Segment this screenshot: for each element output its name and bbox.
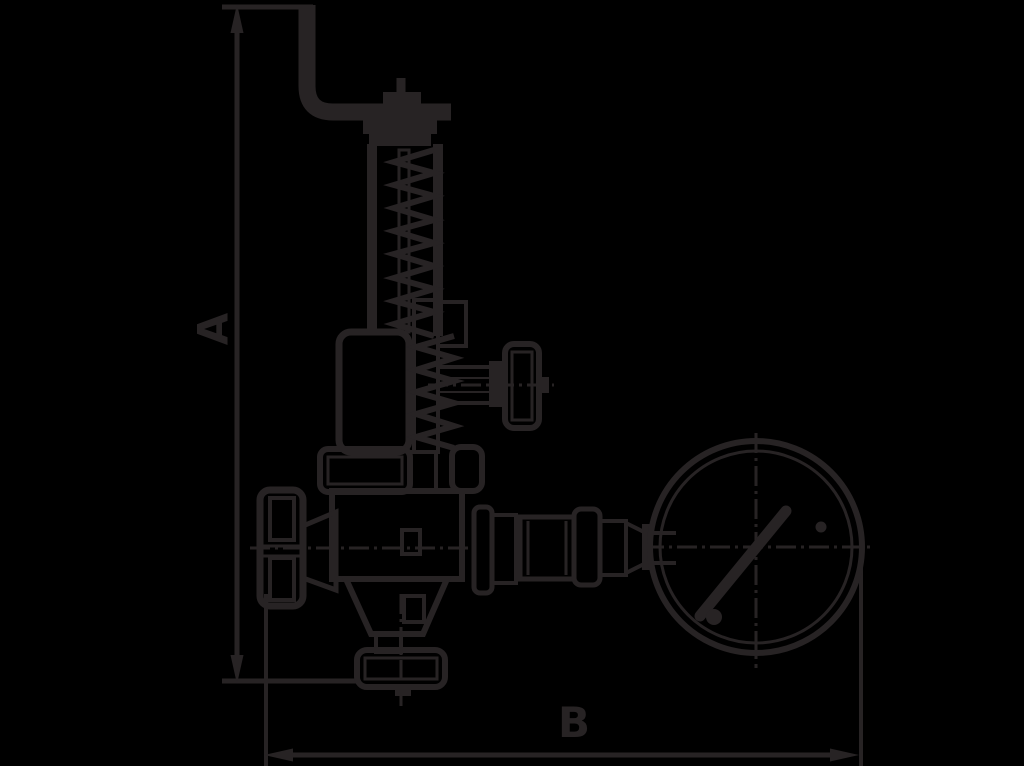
valve-body [250, 490, 480, 706]
lever-bar [307, 5, 451, 112]
spring-casing [339, 332, 409, 452]
cap-stem [397, 78, 406, 94]
gauge-needle [700, 511, 786, 616]
handwheel-inner-bottom [270, 558, 294, 600]
pressure-gauge [644, 433, 871, 668]
handwheel-inner-top [270, 498, 294, 540]
dimension-b-label: B [558, 698, 590, 747]
technical-drawing-canvas: A B [0, 0, 1024, 766]
dimension-a-label: A [189, 312, 238, 345]
spring-bonnet [339, 144, 466, 452]
outlet-stub [395, 687, 411, 696]
bonnet-top-nut [369, 134, 431, 146]
mid-flange-left-inner [328, 457, 402, 484]
tee-flange [474, 507, 492, 593]
union-flange [574, 509, 600, 585]
gauge-dial-dot [816, 522, 827, 533]
arrow-right-icon [830, 749, 859, 762]
needle-counterweight [706, 609, 722, 625]
body-block [332, 491, 462, 579]
bonnet-top-flange [363, 119, 437, 134]
body-taper [346, 579, 447, 634]
gauge-piping [474, 507, 676, 593]
bonnet-cap [383, 92, 421, 107]
safety-valve-with-gauge-diagram: A B [0, 0, 1024, 766]
tee-plate [492, 515, 516, 583]
mid-flange-center [410, 452, 436, 490]
pipe-collar [600, 521, 626, 575]
bonnet-left-wall [367, 144, 377, 334]
release-lever [307, 5, 451, 146]
drain-passage [404, 596, 424, 622]
body-stem-window [402, 530, 420, 554]
arrow-left-icon [264, 749, 293, 762]
mid-flange-right-tab [452, 447, 482, 491]
